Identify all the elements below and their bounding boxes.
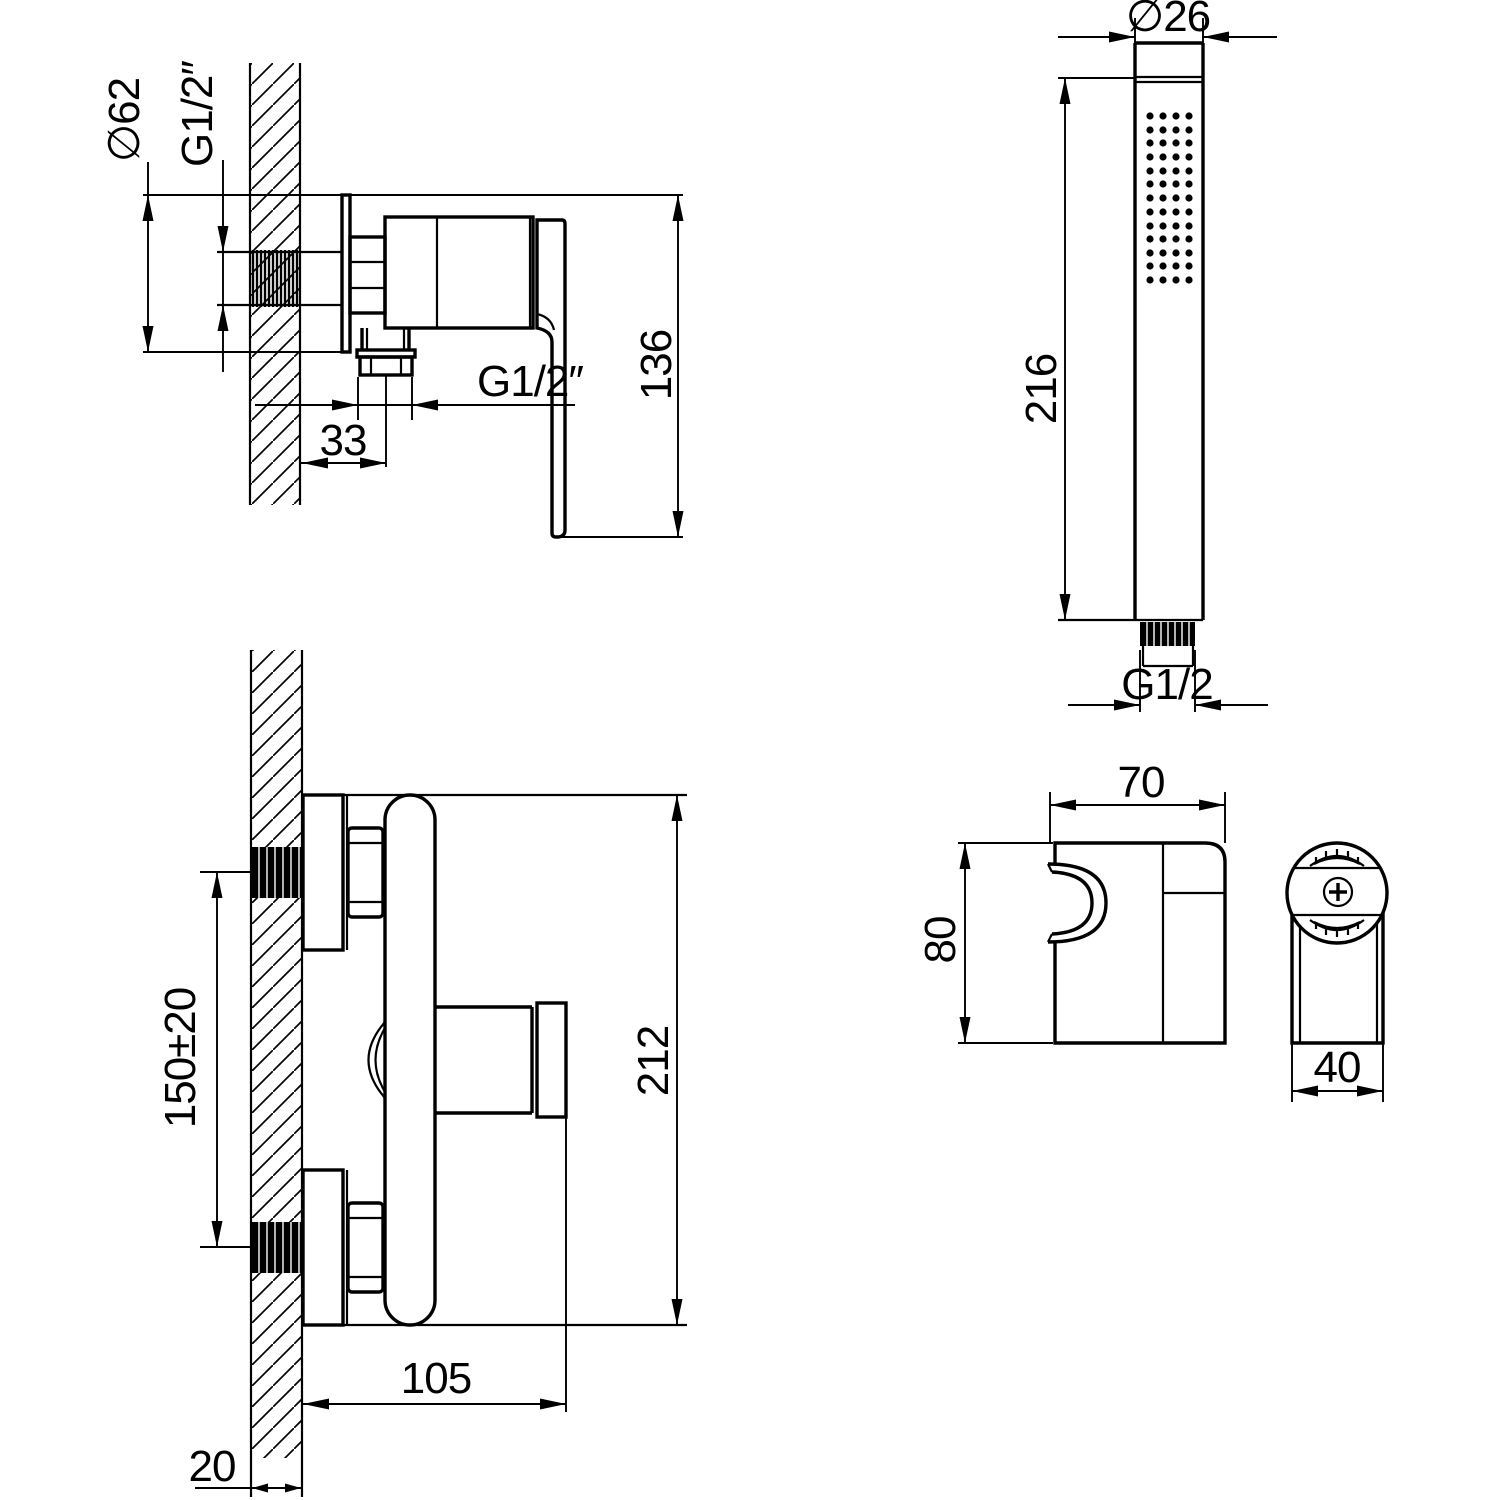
ball-joint-detail	[369, 1022, 386, 1098]
hex-nut-front-bottom	[348, 1203, 383, 1292]
valve-body-side	[385, 217, 533, 328]
wall-bracket-view: 70 80	[916, 758, 1387, 1102]
dim-label-head-diameter: ∅26	[1126, 0, 1210, 41]
dim-label-head-length: 216	[1017, 354, 1066, 424]
spout-front	[435, 1003, 566, 1117]
dim-connector-thread: G1/2	[1068, 650, 1268, 712]
dim-label-bracket-height: 80	[916, 917, 965, 964]
hex-nut-side	[350, 237, 385, 313]
shower-mixer-dimensional-drawing: ∅62 G1/2″ 136 G1/2″ 33	[0, 0, 1500, 1500]
dim-label-outlet-offset: 33	[320, 416, 367, 465]
lever-handle-front	[385, 795, 435, 1325]
mixer-front-view: 150±20 212 105 20	[156, 650, 687, 1497]
dim-label-spout-reach: 105	[401, 1354, 471, 1403]
escutcheon-front-top	[303, 795, 347, 950]
escutcheon-front-bottom	[303, 1170, 347, 1325]
dim-head-diameter: ∅26	[1058, 0, 1277, 43]
dim-label-inlet-thread: G1/2″	[173, 61, 222, 167]
dim-label-escutcheon-diameter: ∅62	[100, 78, 149, 162]
hand-shower-body	[1058, 43, 1203, 620]
inlet-thread-bottom	[251, 1222, 302, 1273]
dim-inlet-spacing: 150±20	[156, 872, 251, 1247]
dim-bracket-depth: 40	[1292, 1043, 1383, 1102]
spray-nozzle-grid	[1146, 112, 1192, 283]
dim-outlet-thread: G1/2″	[255, 357, 583, 420]
hex-nut-front-top	[348, 828, 383, 917]
wall-section-front	[251, 650, 302, 1497]
dim-label-outlet-thread: G1/2″	[477, 357, 583, 406]
dim-label-wall-thickness: 20	[189, 1442, 236, 1491]
dim-front-height: 212	[629, 795, 683, 1325]
technical-drawing-page: ∅62 G1/2″ 136 G1/2″ 33	[0, 0, 1500, 1500]
hand-shower-view: ∅26 216 G1/2	[1017, 0, 1277, 712]
dim-label-front-height: 212	[629, 1026, 678, 1096]
dim-label-bracket-width: 70	[1118, 758, 1165, 807]
bracket-front	[1287, 843, 1387, 1043]
dim-inlet-thread: G1/2″	[173, 61, 229, 372]
dim-bracket-width: 70	[1050, 758, 1225, 843]
bracket-side	[1048, 843, 1225, 1043]
dim-label-inlet-spacing: 150±20	[156, 988, 205, 1129]
dim-outlet-offset: 33	[300, 416, 386, 469]
bracket-clip-hook	[1048, 864, 1106, 942]
mixer-side-view: ∅62 G1/2″ 136 G1/2″ 33	[100, 61, 684, 537]
dim-label-connector-thread: G1/2	[1121, 660, 1212, 709]
inlet-thread-top	[251, 847, 302, 898]
dim-bracket-height: 80	[916, 843, 1053, 1043]
dim-head-length: 216	[1017, 78, 1135, 620]
dim-label-bracket-depth: 40	[1314, 1043, 1361, 1092]
dim-label-side-height: 136	[632, 330, 681, 400]
